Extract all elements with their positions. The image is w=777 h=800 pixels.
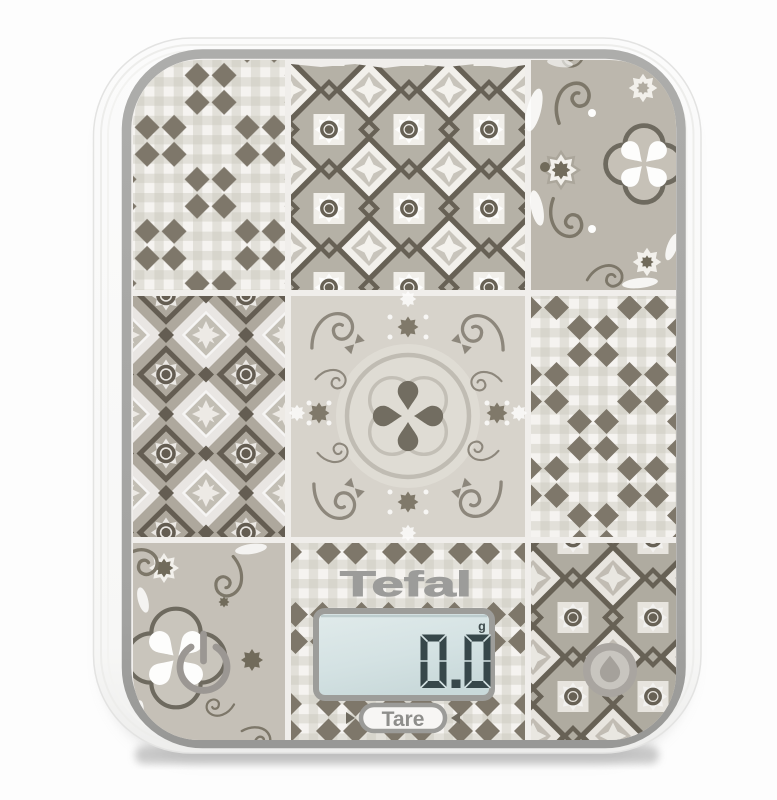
svg-text:Tare: Tare [382, 708, 425, 731]
svg-text:g: g [478, 620, 486, 634]
svg-text:Tefal: Tefal [340, 565, 472, 604]
